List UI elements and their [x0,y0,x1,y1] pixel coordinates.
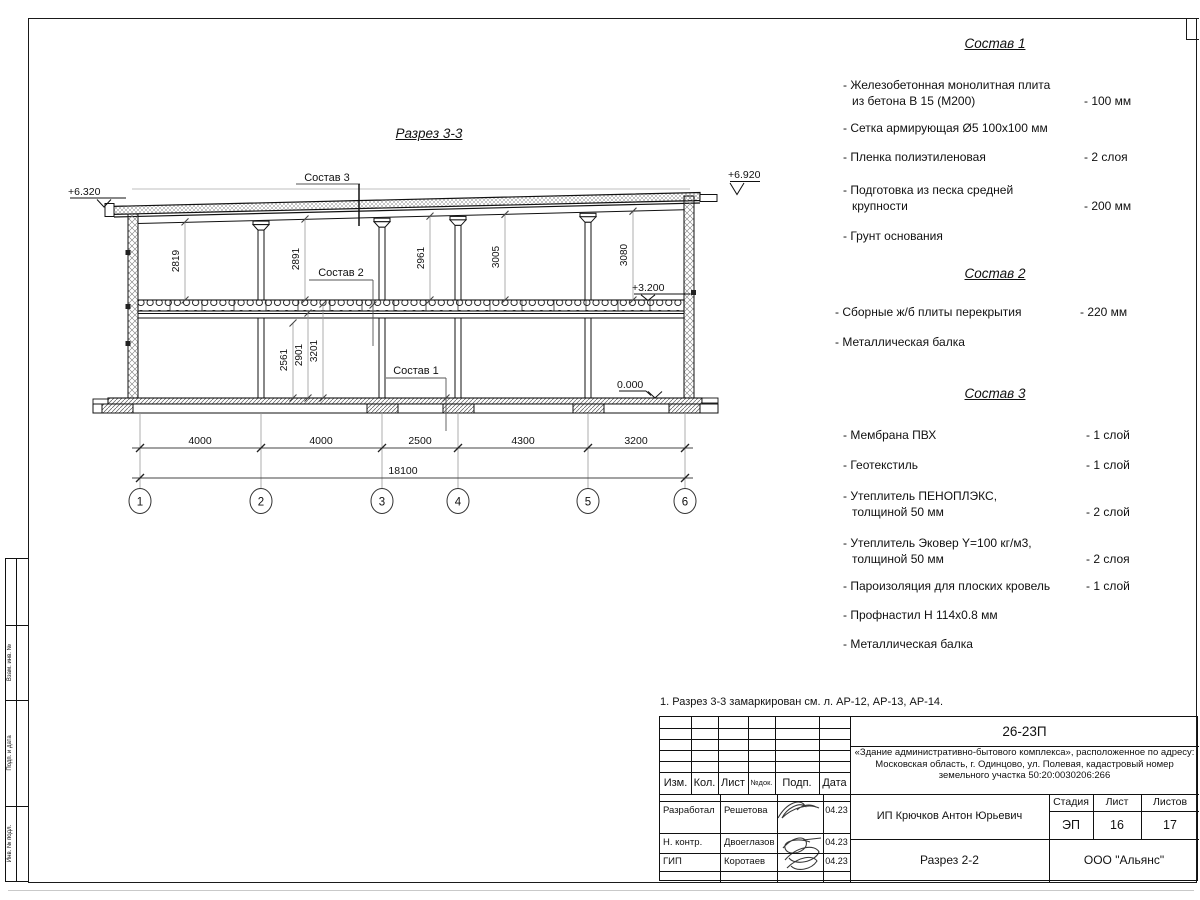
list-item-value: - 1 слой [1086,458,1130,472]
list-item: - Металлическая балка [843,637,973,651]
svg-text:Состав 2: Состав 2 [318,267,364,279]
list-item-line2: из бетона В 15 (М200) [852,94,975,108]
dim-2561: 2561 [279,348,290,371]
elev-0000: 0.000 [617,379,643,391]
elev-6320: +6.320 [68,186,101,198]
col-podp: Подп. [775,772,819,794]
frame-strip-line [5,806,28,807]
sostav1-title: Состав 1 [920,36,1070,51]
elev-6920: +6.920 [728,169,760,181]
project-description: «Здание административно-бытового комплек… [853,747,1196,794]
dim-3200: 3200 [624,435,648,447]
sostav3-title: Состав 3 [920,386,1070,401]
list-item-value: - 1 слой [1086,428,1130,442]
svg-text:Состав 1: Состав 1 [393,365,439,377]
axis-2: 2 [258,497,264,509]
list-item: - Мембрана ПВХ [843,428,936,442]
list-item-value: - 2 слой [1086,505,1130,519]
drawing-sheet: 2819 2891 2961 3005 3080 2561 2901 3201 … [0,0,1200,900]
list-item-value: - 1 слой [1086,579,1130,593]
titleblock-line [850,746,1199,747]
axis-5: 5 [585,497,591,509]
axis-3: 3 [379,497,385,509]
axis-6: 6 [682,497,688,509]
titleblock-line [660,794,1199,795]
strip-label-vzam: Взам. инв. № [5,625,16,700]
dim-3201: 3201 [309,339,320,362]
titleblock-line [660,728,850,729]
titleblock-line [660,801,850,802]
titleblock-line [660,761,850,762]
row1-date: 04.23 [823,805,850,815]
client: ИП Крючков Антон Юрьевич [850,794,1049,839]
list-item: - Пленка полиэтиленовая [843,150,986,164]
col-ndok: №док. [748,772,775,794]
stage-value: ЭП [1049,811,1093,839]
title-block: 26-23П «Здание административно-бытового … [659,716,1198,881]
titleblock-line [660,871,850,872]
dims-lower: 2561 2901 3201 [279,301,327,402]
list-item-value: - 2 слоя [1086,552,1130,566]
titleblock-line [823,794,824,882]
col-data: Дата [819,772,850,794]
list-item-line2: толщиной 50 мм [852,505,944,519]
titleblock-line [850,717,851,882]
row1-name: Решетова [724,805,768,816]
list-item-value: - 2 слоя [1084,150,1128,164]
list-item: - Сборные ж/б плиты перекрытия [835,305,1021,319]
sheet-note: 1. Разрез 3-3 замаркирован см. л. АР-12,… [660,696,943,708]
titleblock-line [850,839,1199,840]
row2-role: Н. контр. [663,837,702,848]
dim-18100: 18100 [388,465,417,477]
strip-label-inv: Инв. № подл. [5,806,16,881]
list-item: - Геотекстиль [843,458,918,472]
row3-role: ГИП [663,856,682,867]
list-item-value: - 200 мм [1084,199,1131,213]
titleblock-line [660,772,850,773]
axis-1: 1 [137,497,143,509]
sheet-value: 16 [1093,811,1141,839]
frame-strip-line [5,558,28,559]
frame-strip-line [5,881,28,882]
axis-4: 4 [455,497,462,509]
list-item-value: - 220 мм [1080,305,1127,319]
paper-edge-line [8,890,1194,891]
col-izm: Изм. [660,772,691,794]
strip-label-podp: Подп. и дата [5,700,16,806]
doc-name: Разрез 2-2 [850,839,1049,881]
roof-slab [105,193,717,224]
dim-2819: 2819 [171,249,182,272]
dims-upper: 2819 2891 2961 3005 3080 [171,208,637,304]
list-item: - Сетка армирующая Ø5 100х100 мм [843,121,1048,135]
dim-4300: 4300 [511,435,535,447]
dim-2500: 2500 [408,435,432,447]
titleblock-line [660,739,850,740]
frame-strip-line [5,625,28,626]
sheets-label: Листов [1141,794,1199,811]
list-item: - Пароизоляция для плоских кровель [843,579,1050,593]
dim-3080: 3080 [619,243,630,266]
dim-4000a: 4000 [188,435,212,447]
svg-text:Состав 3: Состав 3 [304,172,350,184]
list-item-line2: крупности [852,199,908,213]
corner-stamp-box [1186,18,1199,40]
signatures [775,796,825,880]
titleblock-line [777,794,778,882]
org-name: ООО "Альянс" [1049,839,1199,881]
list-item: - Утеплитель ПЕНОПЛЭКС, [843,489,997,503]
dim-3005: 3005 [491,245,502,268]
titleblock-line [660,853,850,854]
list-item: - Подготовка из песка средней [843,183,1013,197]
titleblock-line [1049,794,1050,882]
dim-2961: 2961 [416,246,427,269]
frame-strip-line [5,700,28,701]
sheet-label: Лист [1093,794,1141,811]
ground-slab [93,398,718,413]
titleblock-line [660,750,850,751]
elev-3200: +3.200 [632,282,665,294]
row2-date: 04.23 [823,837,850,847]
frame-strip-line [5,558,6,882]
list-item: - Профнастил Н 114х0.8 мм [843,608,998,622]
list-item: - Металлическая балка [835,335,965,349]
axis-bubbles: 1 2 3 4 5 6 [129,489,696,514]
dim-2901: 2901 [294,343,305,366]
titleblock-line [1141,794,1142,839]
row2-name: Двоеглазов [724,837,775,848]
titleblock-line [720,794,721,882]
dims-bottom: 4000 4000 2500 4300 3200 18100 [132,413,693,489]
list-item-value: - 100 мм [1084,94,1131,108]
list-item: - Утеплитель Эковер Y=100 кг/м3, [843,536,1032,550]
row3-name: Коротаев [724,856,765,867]
row3-date: 04.23 [823,856,850,866]
section-title: Разрез 3-3 [386,126,472,141]
titleblock-line [1093,794,1094,839]
col-kol: Кол. [691,772,718,794]
sostav2-title: Состав 2 [920,266,1070,281]
stage-label: Стадия [1049,794,1093,811]
floor-slab [138,300,684,318]
frame-strip-line [16,558,17,882]
doc-code: 26-23П [850,717,1199,746]
section-drawing: 2819 2891 2961 3005 3080 2561 2901 3201 … [0,0,760,560]
titleblock-line [1049,811,1199,812]
row1-role: Разработал [663,805,715,816]
list-item: - Железобетонная монолитная плита [843,78,1050,92]
dim-4000b: 4000 [309,435,333,447]
list-item: - Грунт основания [843,229,943,243]
titleblock-line [660,833,850,834]
list-item-line2: толщиной 50 мм [852,552,944,566]
sheets-value: 17 [1141,811,1199,839]
dim-2891: 2891 [291,247,302,270]
col-list: Лист [718,772,748,794]
